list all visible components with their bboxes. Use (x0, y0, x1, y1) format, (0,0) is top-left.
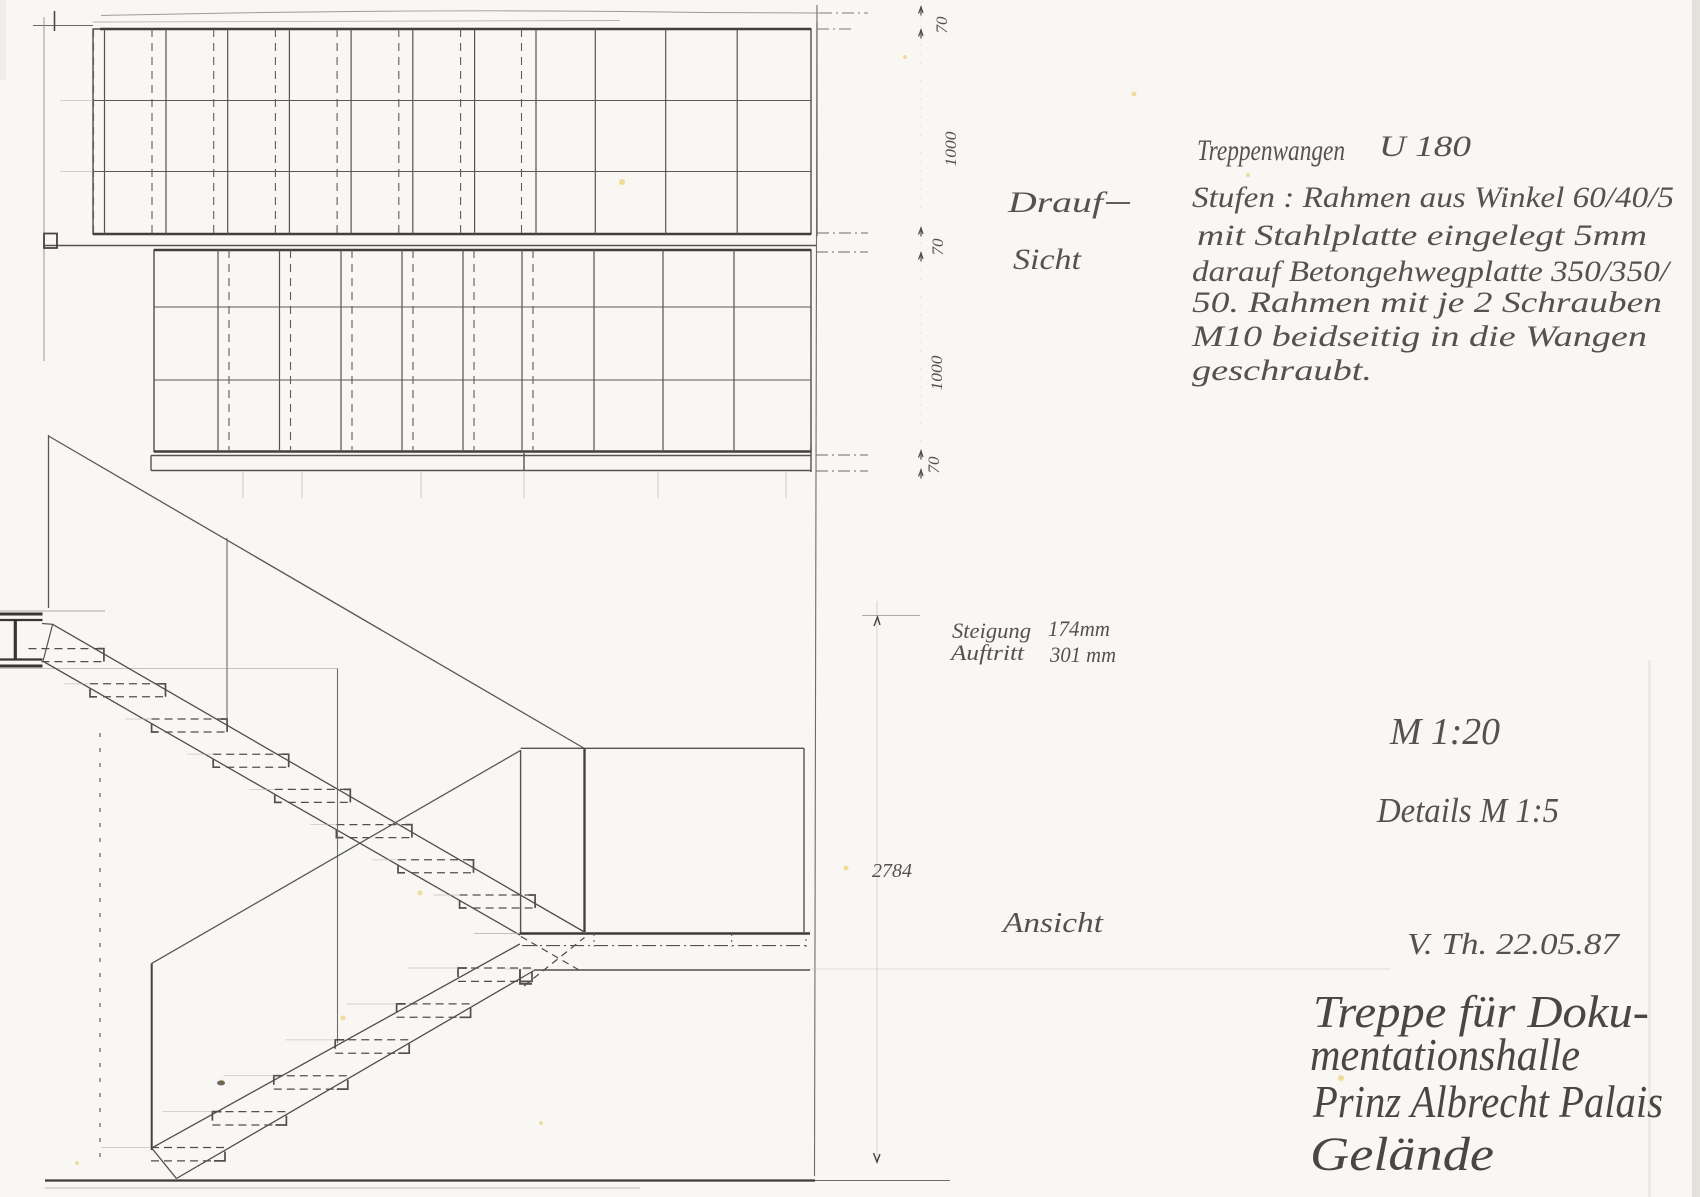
svg-text:M 1:20: M 1:20 (1389, 711, 1500, 753)
svg-text:2784: 2784 (872, 860, 912, 882)
svg-text:M10 beidseitig in die Wangen: M10 beidseitig in die Wangen (1191, 320, 1647, 353)
svg-text:Gelände: Gelände (1310, 1128, 1494, 1181)
svg-text:174mm: 174mm (1048, 616, 1110, 641)
svg-text:Treppenwangen: Treppenwangen (1197, 134, 1345, 167)
svg-text:mit Stahlplatte eingelegt 5mm: mit Stahlplatte eingelegt 5mm (1197, 219, 1647, 252)
svg-text:Sicht: Sicht (1013, 243, 1082, 276)
svg-text:1000: 1000 (929, 356, 946, 391)
svg-text:1000: 1000 (943, 132, 960, 167)
svg-text:Auftritt: Auftritt (949, 640, 1025, 665)
svg-text:Details M 1:5: Details M 1:5 (1376, 791, 1559, 830)
svg-text:50. Rahmen mit je 2 Schrauben: 50. Rahmen mit je 2 Schrauben (1192, 286, 1662, 319)
svg-text:301 mm: 301 mm (1049, 642, 1116, 667)
svg-text:darauf Betongehwegplatte 350/3: darauf Betongehwegplatte 350/350/ (1192, 255, 1672, 288)
svg-text:geschraubt.: geschraubt. (1192, 354, 1372, 387)
svg-text:Prinz Albrecht Palais: Prinz Albrecht Palais (1312, 1077, 1663, 1127)
svg-text:V. Th. 22.05.87: V. Th. 22.05.87 (1407, 926, 1621, 961)
svg-text:70: 70 (926, 457, 943, 474)
svg-text:mentationshalle: mentationshalle (1310, 1030, 1580, 1080)
svg-text:Drauf: Drauf (1007, 186, 1108, 219)
svg-text:Ansicht: Ansicht (1001, 907, 1104, 939)
svg-text:Stufen : Rahmen aus Winkel 60/: Stufen : Rahmen aus Winkel 60/40/5 (1192, 181, 1674, 214)
svg-text:U 180: U 180 (1379, 130, 1471, 163)
svg-text:70: 70 (930, 239, 947, 256)
svg-text:70: 70 (934, 17, 951, 34)
